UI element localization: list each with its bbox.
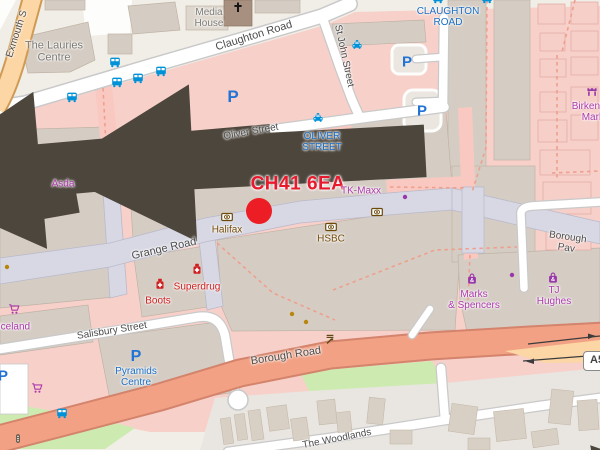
shop-node-dot [403, 195, 407, 199]
poi-node-dot [290, 312, 294, 316]
poi-node-dot [5, 265, 9, 269]
map-tiles: & [0, 0, 600, 450]
map-canvas[interactable]: & [0, 0, 600, 450]
poi-node-dot [304, 320, 308, 324]
postcode-marker [246, 198, 272, 224]
bank-icon-halifax [222, 214, 233, 221]
bank-icon-hsbc [326, 224, 337, 231]
shop-node-dot [510, 273, 514, 277]
bank-icon [372, 209, 383, 216]
traffic-signals-icon [16, 434, 20, 443]
road-shield-a5: A5 [583, 351, 600, 371]
